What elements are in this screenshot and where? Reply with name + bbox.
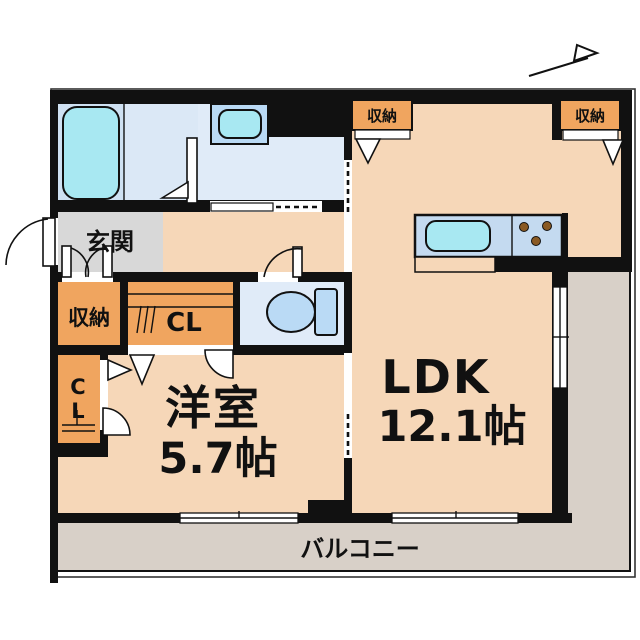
label-cl-side-l: L xyxy=(71,399,84,423)
kitchen-sink xyxy=(426,221,490,251)
window-bedroom-south xyxy=(180,511,298,523)
window-ldk-east xyxy=(553,287,569,388)
label-bedroom-size: 5.7帖 xyxy=(158,434,277,484)
label-balcony: バルコニー xyxy=(300,535,420,563)
label-genkan: 玄関 xyxy=(86,228,134,256)
toilet xyxy=(267,289,337,335)
counter-front xyxy=(415,257,495,272)
floor-plan: 玄関 収納 CL C L 洋室 5.7帖 LDK 12.1帖 収納 収納 バルコ… xyxy=(0,0,640,640)
label-storage-ldk-left: 収納 xyxy=(367,107,397,125)
label-storage-entrance: 収納 xyxy=(68,306,110,330)
label-ldk-size: 12.1帖 xyxy=(377,402,526,452)
washbasin xyxy=(211,104,268,144)
entrance-door xyxy=(6,218,55,266)
window-ldk-south xyxy=(392,511,518,523)
label-ldk-name: LDK xyxy=(381,350,490,404)
label-cl-side-c: C xyxy=(70,375,85,399)
north-arrow-icon xyxy=(529,45,597,76)
room-floors xyxy=(58,104,621,513)
label-bedroom-name: 洋室 xyxy=(165,381,261,435)
label-closet-cl: CL xyxy=(166,308,202,338)
floor-plan-image: 玄関 収納 CL C L 洋室 5.7帖 LDK 12.1帖 収納 収納 バルコ… xyxy=(0,0,640,640)
label-storage-ldk-right: 収納 xyxy=(575,107,605,125)
bathtub xyxy=(63,107,119,199)
